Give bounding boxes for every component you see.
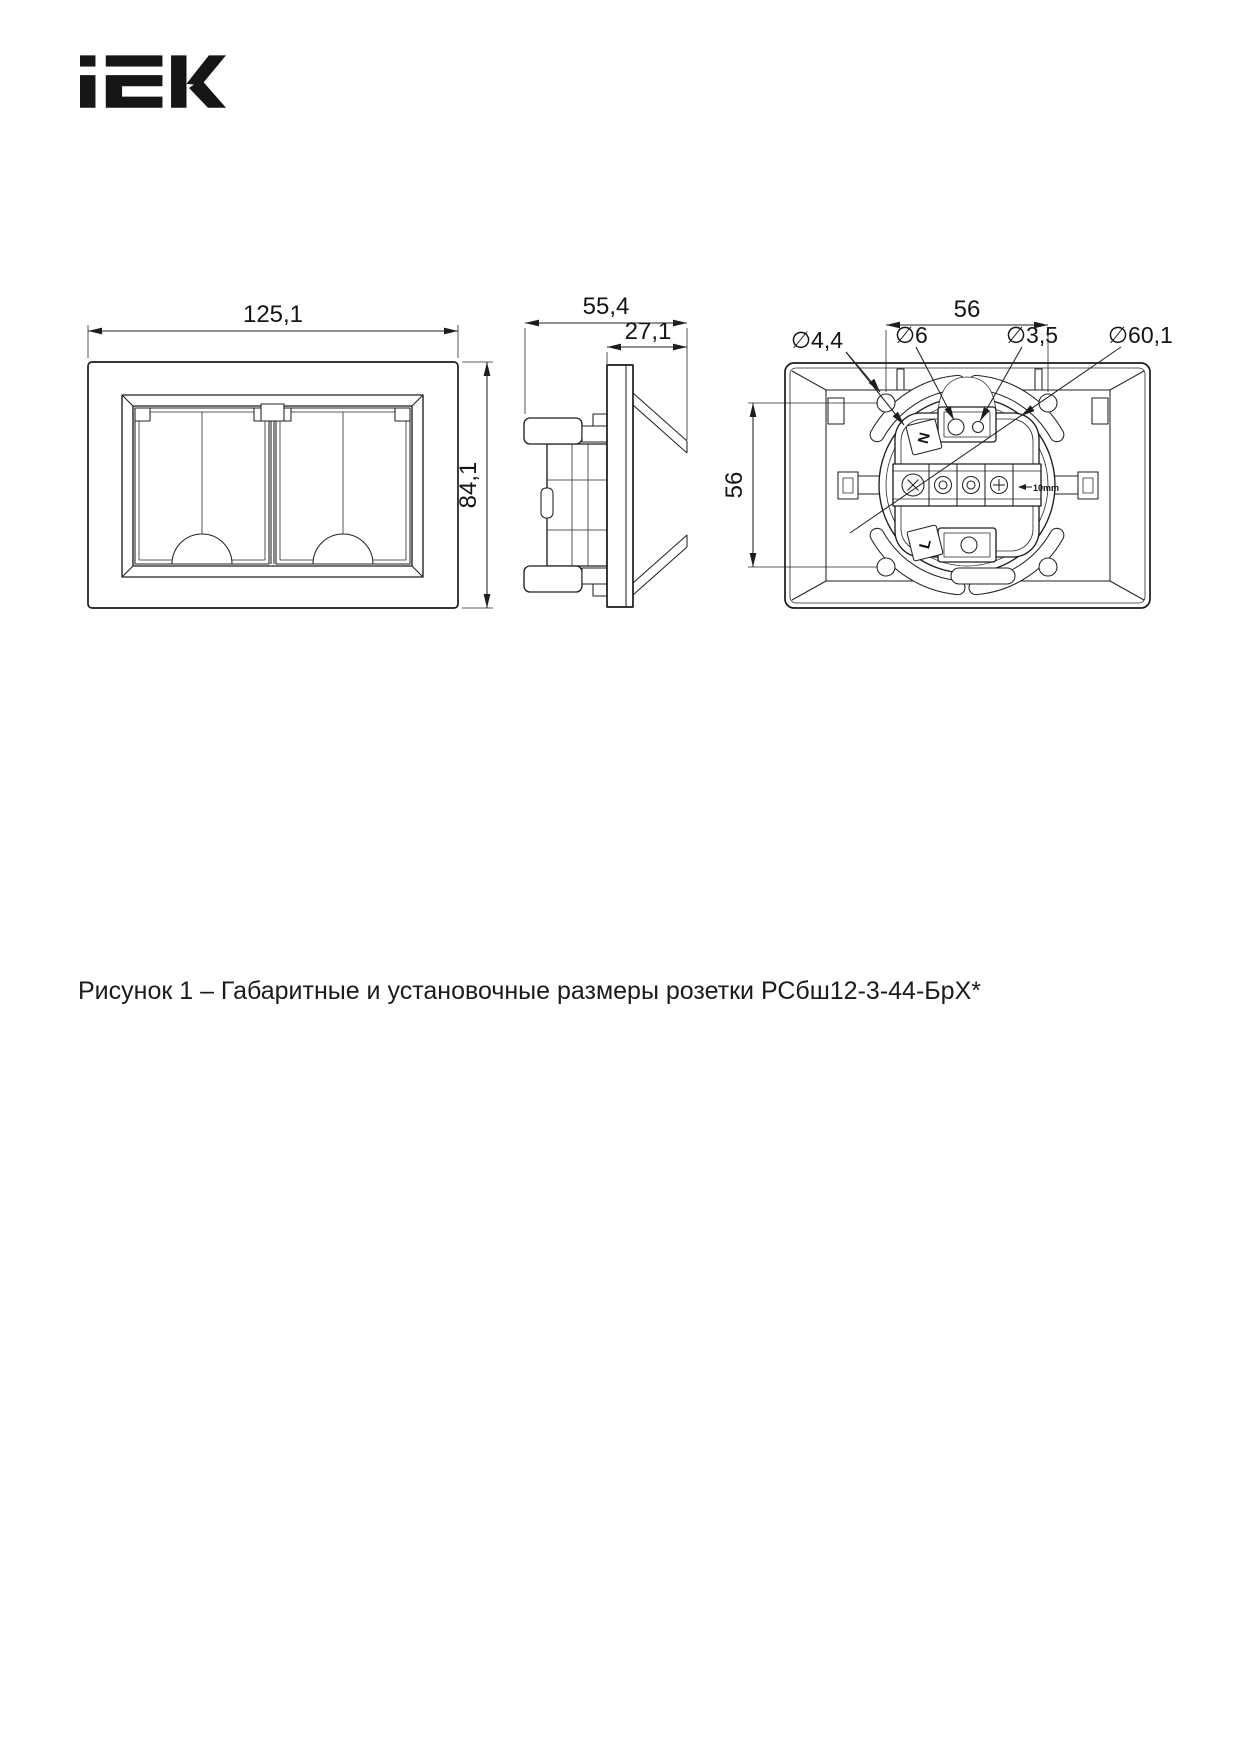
datasheet-page: { "brand": { "logo_text": "IEK" }, "figu…	[0, 0, 1244, 1748]
back-view: 10mm N L 56	[688, 290, 1198, 630]
side-dim-front-label: 27,1	[625, 318, 672, 345]
side-mounting-claws	[633, 393, 687, 595]
iek-logo-graphic: IEK	[80, 54, 226, 110]
iek-logo: IEK	[80, 54, 226, 110]
strip-length-label: 10mm	[1033, 483, 1059, 493]
iek-logo-letters	[80, 55, 226, 107]
figure-caption: Рисунок 1 – Габаритные и установочные ра…	[78, 976, 1158, 1007]
back-dim-cup-label: ∅60,1	[1108, 322, 1173, 348]
back-dim-corner-hole-label: ∅4,4	[791, 327, 843, 353]
front-dim-width: 125,1	[88, 301, 458, 358]
side-view-drawing: 55,4 27,1	[450, 298, 710, 628]
back-dim-pitch-h-label: 56	[954, 296, 981, 323]
back-view-drawing: 10mm N L 56	[688, 290, 1198, 630]
front-view-drawing: 125,1 84,1	[76, 298, 506, 628]
back-dim-top-hole-label: ∅6	[895, 322, 928, 348]
front-view: 125,1 84,1	[76, 298, 506, 628]
side-mechanism	[524, 414, 607, 596]
side-cover-plate	[607, 365, 633, 607]
back-dim-screw-hole-label: ∅3,5	[1006, 322, 1058, 348]
front-dim-width-label: 125,1	[243, 301, 303, 328]
side-dim-total-label: 55,4	[583, 293, 630, 320]
back-dim-pitch-v-label: 56	[721, 472, 748, 499]
side-view: 55,4 27,1	[450, 298, 710, 628]
